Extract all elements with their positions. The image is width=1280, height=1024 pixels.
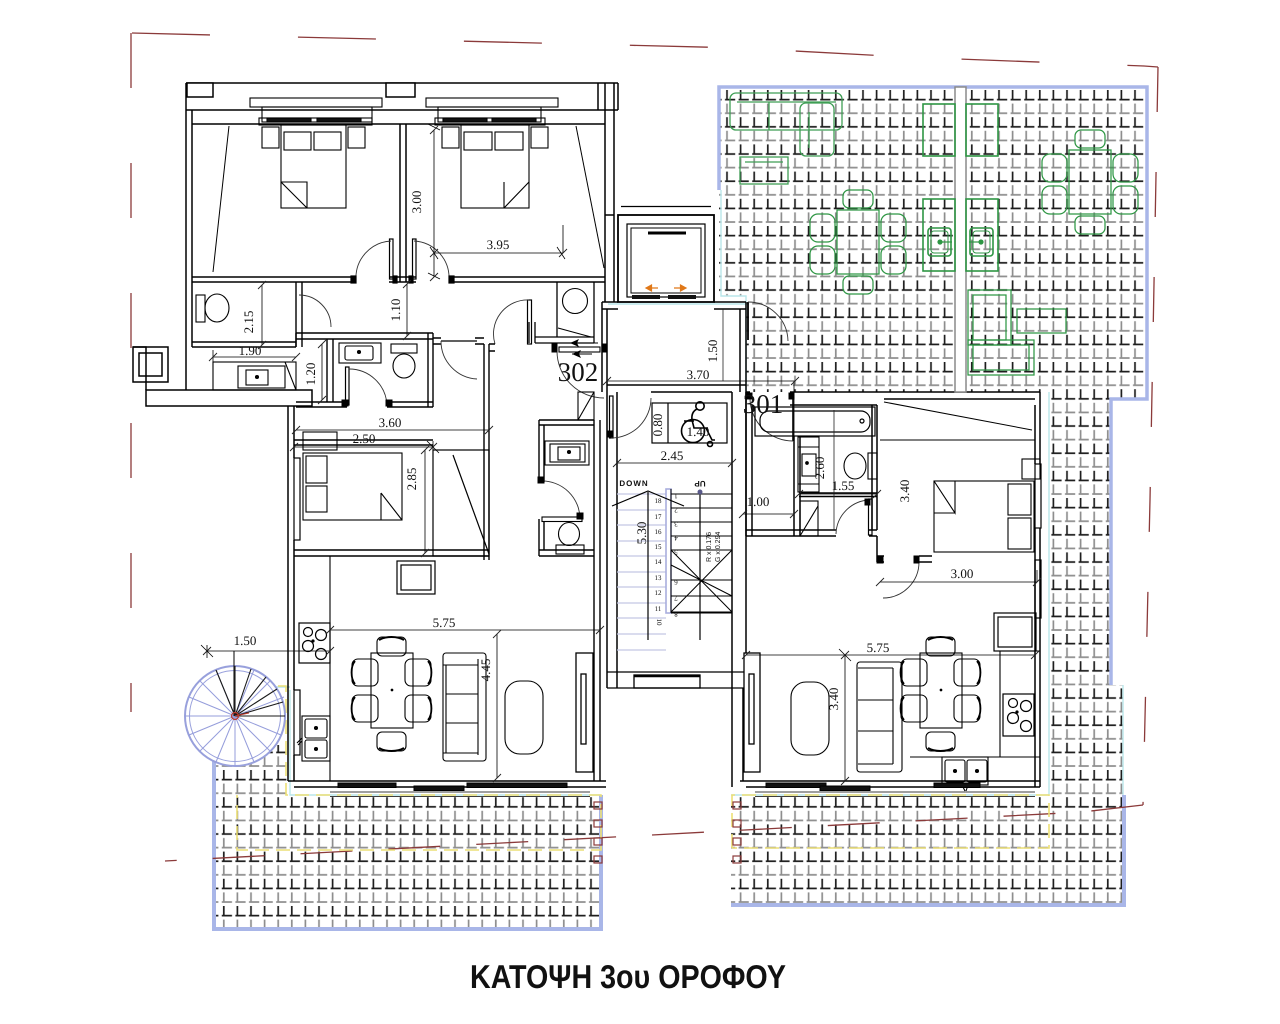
svg-text:2.50: 2.50 — [353, 431, 376, 446]
svg-text:R x 0.176: R x 0.176 — [706, 532, 713, 562]
svg-text:302: 302 — [558, 357, 599, 387]
svg-text:G x 0.294: G x 0.294 — [715, 532, 722, 562]
svg-text:301: 301 — [743, 389, 784, 419]
svg-text:4: 4 — [674, 534, 678, 542]
svg-text:0.80: 0.80 — [650, 414, 665, 437]
svg-text:2.45: 2.45 — [661, 448, 684, 463]
svg-text:1.40: 1.40 — [687, 424, 710, 439]
svg-text:3.00: 3.00 — [951, 566, 974, 581]
svg-text:1.50: 1.50 — [705, 340, 720, 363]
svg-text:1.55: 1.55 — [832, 478, 855, 493]
svg-text:3.95: 3.95 — [487, 237, 510, 252]
svg-text:1.90: 1.90 — [239, 343, 262, 358]
svg-text:2: 2 — [674, 506, 678, 514]
svg-text:13: 13 — [655, 574, 663, 582]
svg-text:1.50: 1.50 — [234, 633, 257, 648]
svg-text:2.85: 2.85 — [404, 468, 419, 491]
svg-text:2.15: 2.15 — [241, 311, 256, 334]
svg-text:ΚΑΤΟΨΗ 3ου ΟΡΟΦΟΥ: ΚΑΤΟΨΗ 3ου ΟΡΟΦΟΥ — [470, 958, 786, 995]
svg-text:1: 1 — [674, 492, 678, 500]
svg-text:12: 12 — [655, 589, 663, 597]
svg-text:5: 5 — [674, 548, 678, 556]
svg-text:3.40: 3.40 — [897, 480, 912, 503]
svg-text:5.75: 5.75 — [867, 640, 890, 655]
svg-text:5.75: 5.75 — [433, 615, 456, 630]
svg-text:DOWN: DOWN — [619, 479, 648, 488]
svg-text:3.40: 3.40 — [826, 688, 841, 711]
svg-text:18: 18 — [655, 497, 663, 505]
svg-text:7: 7 — [674, 594, 678, 602]
svg-text:3: 3 — [674, 520, 678, 528]
svg-text:2.60: 2.60 — [812, 457, 827, 480]
svg-text:1.10: 1.10 — [388, 299, 403, 322]
svg-text:14: 14 — [655, 558, 663, 566]
svg-text:16: 16 — [655, 528, 663, 536]
svg-text:4.45: 4.45 — [478, 659, 493, 682]
svg-text:11: 11 — [655, 605, 662, 613]
svg-text:15: 15 — [655, 543, 663, 551]
svg-text:3.70: 3.70 — [687, 367, 710, 382]
svg-text:8: 8 — [674, 610, 678, 618]
svg-text:3.00: 3.00 — [409, 191, 424, 214]
svg-text:3.60: 3.60 — [379, 415, 402, 430]
svg-text:10: 10 — [655, 619, 663, 627]
svg-text:17: 17 — [655, 513, 663, 521]
svg-text:UP: UP — [694, 479, 706, 488]
svg-text:5.30: 5.30 — [634, 522, 649, 545]
svg-text:1.00: 1.00 — [747, 494, 770, 509]
svg-text:1.20: 1.20 — [303, 363, 318, 386]
svg-text:6: 6 — [674, 578, 678, 586]
